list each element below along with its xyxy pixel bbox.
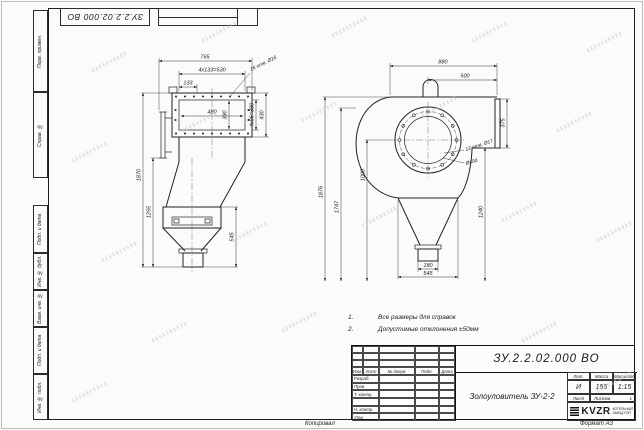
note-2-text: Допустимые отклонения ±50мм (378, 326, 479, 333)
top-stamp-extra-midline (159, 17, 237, 18)
tb-cell (439, 360, 455, 367)
tb-cell (379, 398, 415, 406)
footer-format-label: Формат А3 (580, 421, 613, 427)
frame-field-perv-primen: Перв. примен. (33, 10, 48, 92)
tb-cell (363, 353, 379, 360)
kvzr-logo-subtext: КОТЕЛЬНЫЙ ЗАВОД РЭП (613, 408, 633, 416)
tb-row-checker: Пров. (352, 383, 379, 391)
tb-header-doc: № докум. (379, 367, 415, 375)
tb-cell (379, 346, 415, 353)
tb-cell (379, 360, 415, 367)
dim-side-right-height: 1240 (479, 205, 485, 218)
tb-cell (415, 360, 439, 367)
tb-cell (379, 383, 415, 391)
dim-side-total-width: 880 (438, 60, 448, 66)
tb-cell (415, 413, 439, 421)
dim-front-total-width: 765 (200, 55, 210, 61)
kvzr-logo-text: KVZR (581, 406, 610, 417)
tb-manufacturer: KVZR КОТЕЛЬНЫЙ ЗАВОД РЭП (567, 402, 636, 421)
kvzr-logo-icon (570, 407, 579, 416)
tb-cell (439, 413, 455, 421)
tb-cell (415, 353, 439, 360)
dim-front-inner-width: 480 (207, 110, 217, 116)
dim-front-inner-height: 390 (223, 109, 229, 119)
tb-mass-value: 155 (590, 380, 613, 394)
top-stamp-extra (158, 8, 258, 26)
tb-sheet-header: Лист (567, 394, 590, 402)
note-1-text: Все размеры для справок (378, 314, 456, 321)
tb-cell (352, 353, 363, 360)
tb-cell (439, 353, 455, 360)
tb-mass-header: Масса (590, 372, 613, 380)
dim-side-hopper-width: 545 (423, 271, 433, 277)
tb-cell (352, 346, 363, 353)
drawing-sheet: Перв. примен. Справ. № Подп. и дата Инв.… (0, 0, 644, 430)
dim-side-center-height: 1000 (361, 168, 367, 181)
dim-front-pitch: 133 (183, 81, 193, 87)
tb-header-sign: Подп. (415, 367, 439, 375)
tb-cell (379, 353, 415, 360)
note-2: 2. Допустимые отклонения ±50мм (348, 323, 479, 335)
tb-cell (415, 346, 439, 353)
tb-cell (415, 375, 439, 383)
dim-side-holes-note: 12 отв. Ø17 (465, 138, 494, 153)
dim-side-outlet-width: 180 (423, 263, 433, 269)
frame-field-inv-podl: Инв. № подл. (33, 374, 48, 420)
dim-front-holes-note: 16 отв. Ø16 (249, 55, 278, 73)
tb-row-tcontrol: Т. контр. (352, 390, 379, 398)
tb-cell (379, 375, 415, 383)
frame-field-vzam-inv: Взам. инв. № (33, 290, 48, 327)
dim-side-inner-height: 1747 (335, 200, 341, 213)
tb-lit-header: Лит. (567, 372, 590, 380)
note-2-number: 2. (348, 326, 378, 333)
title-block-revision-table: Изм. Лист № докум. Подп. Дата Разраб. Пр… (352, 346, 455, 421)
tb-scale-header: Масштаб (613, 372, 636, 380)
tb-cell (352, 398, 379, 406)
side-view: 880 500 1876 1747 1000 375 1240 12 отв. … (312, 48, 522, 303)
dim-front-hopper-height: 545 (230, 231, 236, 241)
frame-field-inv-dubl: Инв. № дубл. (33, 253, 48, 290)
tb-sheets-value: 1 (629, 396, 632, 401)
top-stamp-doc-number: ЗУ.2.2.02.000 ВО (60, 8, 150, 26)
tb-header-izm: Изм. (352, 367, 363, 375)
note-1: 1. Все размеры для справок (348, 311, 479, 323)
tb-lit-value: И (567, 380, 590, 394)
tb-cell (415, 398, 439, 406)
title-block: Изм. Лист № докум. Подп. Дата Разраб. Пр… (351, 345, 635, 420)
front-view-centerlines (192, 88, 212, 272)
dim-side-total-height: 1876 (319, 185, 325, 198)
tb-cell (439, 375, 455, 383)
footer-copied-label: Копировал (305, 421, 335, 427)
tb-doc-number: ЗУ.2.2.02.000 ВО (455, 346, 637, 373)
kvzr-logo-subtext-line2: ЗАВОД РЭП (613, 412, 633, 416)
tb-row-ncontrol: Н. контр. (352, 406, 379, 414)
tb-row-developer: Разраб. (352, 375, 379, 383)
dim-front-total-height: 1870 (137, 168, 143, 181)
tb-part-name: Золоуловитель ЗУ-2-2 (455, 372, 568, 421)
top-stamp-doc-number-text: ЗУ.2.2.02.000 ВО (67, 12, 143, 22)
tb-header-date: Дата (439, 367, 455, 375)
tb-cell (439, 346, 455, 353)
tb-cell (439, 390, 455, 398)
tb-cell (379, 390, 415, 398)
tb-cell (379, 413, 415, 421)
tb-cell (415, 383, 439, 391)
dim-front-bolt-pitch-v: 4x95=380 (250, 102, 256, 127)
notes: 1. Все размеры для справок 2. Допустимые… (348, 311, 479, 335)
dim-side-outlet-dia: Ø400 (464, 158, 479, 167)
top-stamp-extra-divider (237, 9, 238, 25)
tb-cell (439, 398, 455, 406)
tb-row-approver: Утв. (352, 413, 379, 421)
dim-front-body-height: 1255 (147, 205, 153, 218)
frame-field-sprav-no: Справ. № (33, 92, 48, 178)
note-1-number: 1. (348, 314, 378, 321)
tb-header-list: Лист (363, 367, 379, 375)
tb-sheets: Листов 1 (590, 394, 636, 402)
tb-cell (352, 360, 363, 367)
front-view-dimensions: 765 4x133=530 133 16 отв. Ø16 480 390 4x… (137, 55, 278, 268)
tb-cell (363, 360, 379, 367)
dim-side-outlet-offset: 500 (460, 74, 470, 80)
tb-cell (415, 406, 439, 414)
frame-field-podp-data-1: Подп. и дата (33, 205, 48, 253)
tb-sheets-header: Листов (594, 396, 610, 401)
tb-cell (415, 390, 439, 398)
dim-front-bolt-pitch-h: 4x133=530 (198, 68, 226, 74)
frame-field-podp-data-2: Подп. и дата (33, 327, 48, 374)
dim-front-flange-height: 430 (260, 109, 266, 119)
tb-cell (439, 406, 455, 414)
tb-cell (439, 383, 455, 391)
dim-side-flange-height: 375 (501, 117, 507, 127)
tb-scale-value: 1:15 (613, 380, 636, 394)
front-view: 765 4x133=530 133 16 отв. Ø16 480 390 4x… (128, 45, 293, 275)
tb-cell (379, 406, 415, 414)
tb-cell (363, 346, 379, 353)
